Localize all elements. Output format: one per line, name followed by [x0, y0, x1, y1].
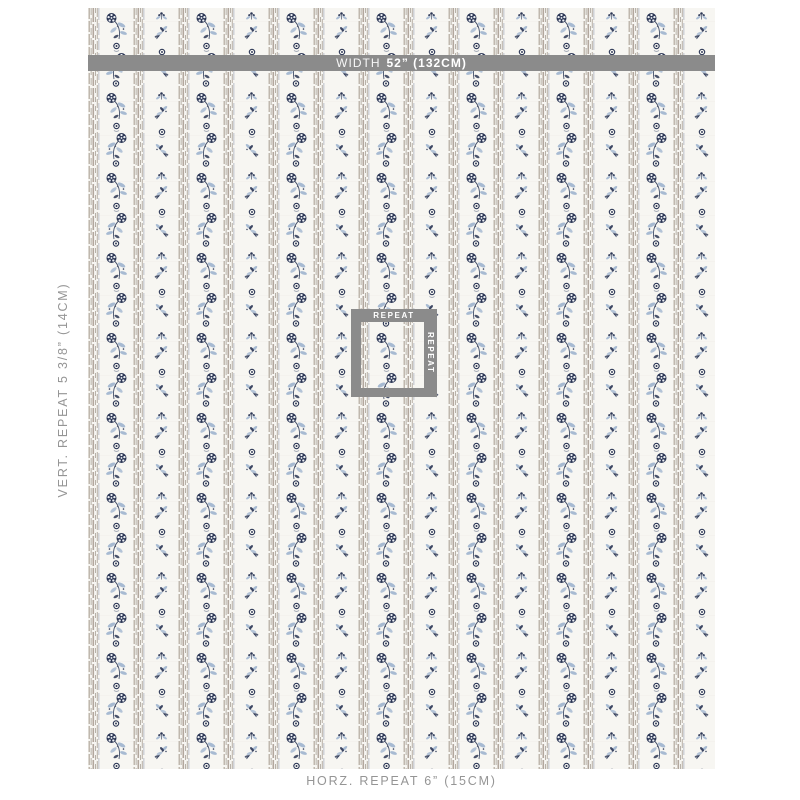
vertical-repeat-label-text: VERT. REPEAT 5 3/8” (14CM) [56, 283, 70, 498]
repeat-label-side: REPEAT [424, 309, 437, 397]
width-measurement-bar: WIDTH 52” (132CM) [88, 55, 715, 71]
width-label-value: 52” (132CM) [386, 55, 466, 71]
fabric-measurement-diagram: WIDTH 52” (132CM) REPEAT REPEAT VERT. RE… [0, 0, 800, 800]
width-label-prefix: WIDTH [336, 55, 380, 71]
horizontal-repeat-label: HORZ. REPEAT 6” (15CM) [88, 774, 715, 788]
repeat-outline-box: REPEAT REPEAT [351, 309, 437, 397]
